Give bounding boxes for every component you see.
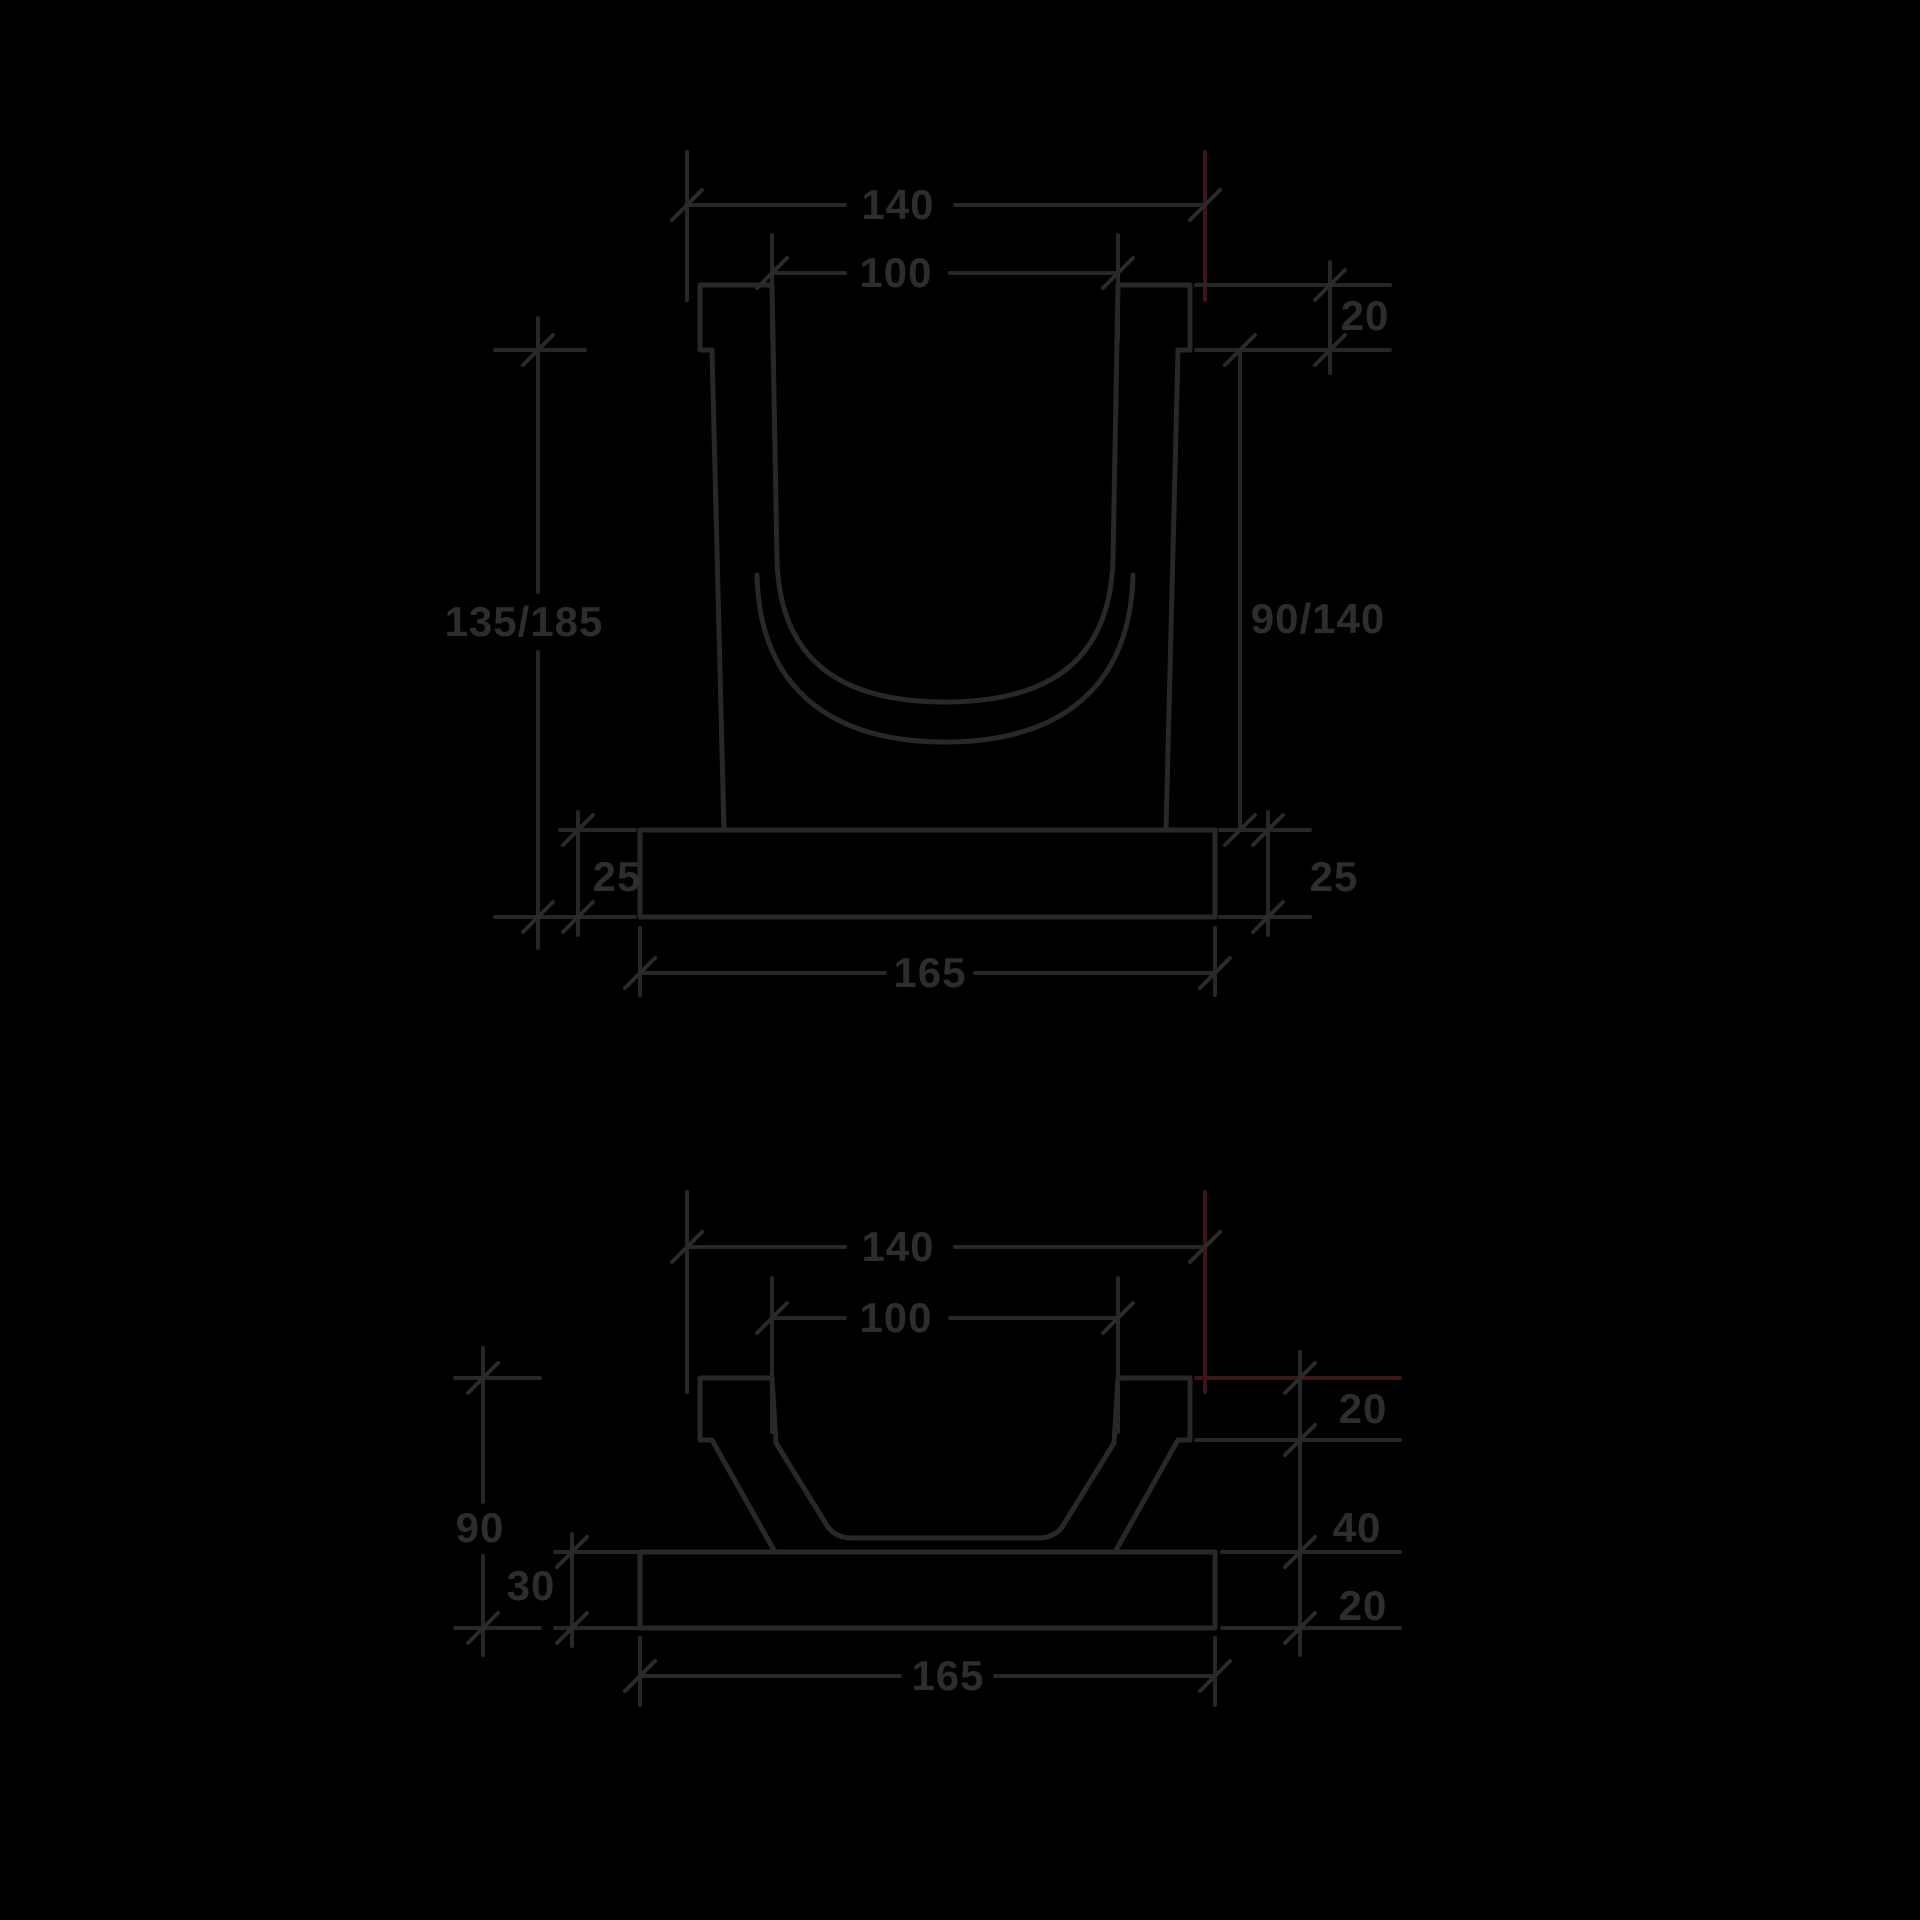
- channel-profile: [640, 1378, 1215, 1628]
- dim-label-inner-depth: 40: [1333, 1504, 1382, 1551]
- dim-right-stack: 20 40 20: [1196, 1352, 1400, 1655]
- dim-label-overall-height: 135/185: [445, 598, 604, 645]
- technical-drawing-canvas: 140 100 20 90/140 135/185: [0, 0, 1920, 1920]
- dim-label-base-width: 165: [893, 949, 966, 996]
- bottom-drawing: 140 100 20 40 20 90: [455, 1192, 1400, 1705]
- extension-line: [772, 235, 1118, 340]
- dim-label-base-thickness-right: 25: [1310, 853, 1359, 900]
- channel-outer-profile: [640, 1378, 1215, 1628]
- dim-rim-height: 20: [1196, 262, 1390, 373]
- dim-overall-width: 140: [672, 152, 1220, 300]
- dim-base-width: 165: [625, 928, 1230, 996]
- dim-inner-width: 100: [757, 1278, 1133, 1432]
- dim-inner-width: 100: [757, 235, 1133, 340]
- dim-label-inner-width: 100: [859, 249, 932, 296]
- top-drawing: 140 100 20 90/140 135/185: [445, 152, 1390, 996]
- dim-inner-depth: 90/140: [1220, 335, 1385, 845]
- dim-label-rim-height: 20: [1341, 292, 1390, 339]
- dim-label-overall-width: 140: [861, 181, 934, 228]
- dim-label-inner-depth: 90/140: [1251, 595, 1385, 642]
- dim-label-overall-height: 90: [456, 1504, 505, 1551]
- channel-inner-u-profile: [772, 285, 1118, 702]
- dim-overall-width: 140: [672, 1192, 1220, 1392]
- dim-label-base-width: 165: [911, 1652, 984, 1699]
- dim-label-base-thickness-right: 20: [1339, 1582, 1388, 1629]
- dim-base-thickness-left: 25: [560, 812, 641, 935]
- channel-inner-profile: [772, 1378, 1118, 1538]
- dim-base-width: 165: [625, 1638, 1230, 1705]
- extension-line: [555, 1552, 645, 1628]
- channel-profile: [640, 285, 1215, 917]
- dim-label-rim-height: 20: [1339, 1385, 1388, 1432]
- dim-label-overall-width: 140: [861, 1223, 934, 1270]
- dim-label-base-thickness-left: 25: [593, 853, 642, 900]
- extension-line: [772, 1278, 1118, 1432]
- dim-label-inner-width: 100: [859, 1294, 932, 1341]
- dim-label-base-thickness-left: 30: [507, 1562, 556, 1609]
